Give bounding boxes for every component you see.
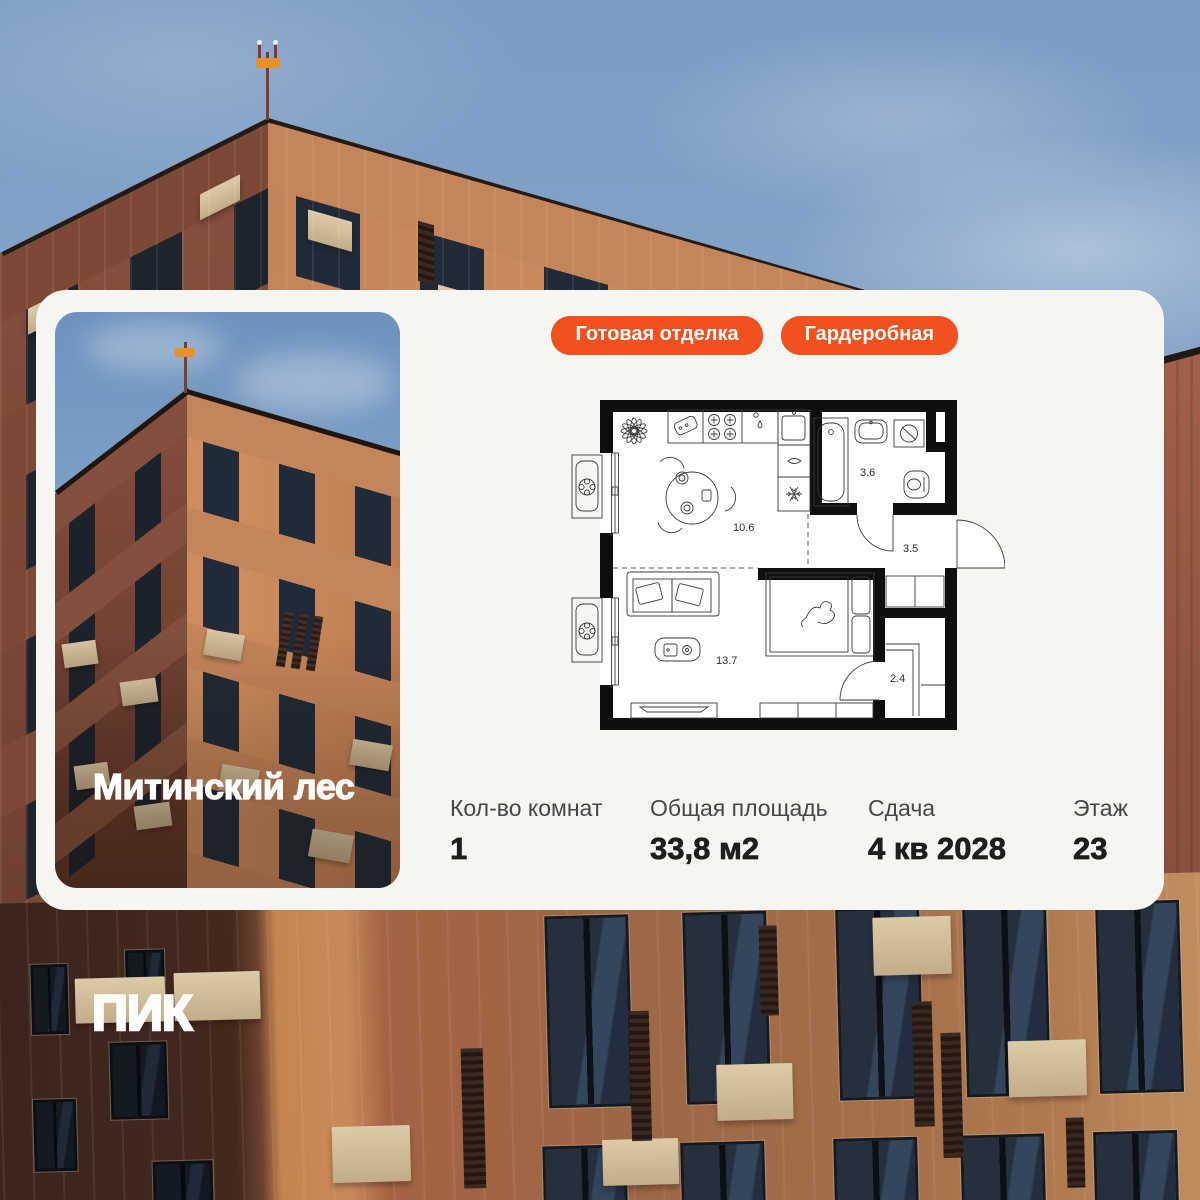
vent-strip <box>629 1011 652 1141</box>
facade-window <box>1095 900 1184 1094</box>
antenna-lamp <box>258 44 261 58</box>
stat-rooms: Кол-во комнат 1 <box>450 795 602 867</box>
floor-plan: 10.6 3.6 <box>565 395 1005 745</box>
vent-strip <box>912 1001 935 1126</box>
stat-floor: Этаж 23 <box>1073 795 1128 867</box>
room-label-wardrobe: 2.4 <box>890 673 905 685</box>
facade-window <box>33 1099 78 1172</box>
ac-box <box>716 1063 793 1121</box>
ac-box <box>1008 1039 1087 1097</box>
stat-label: Кол-во комнат <box>450 795 602 822</box>
pik-logo: ПИК <box>92 984 191 1042</box>
room-label-bathroom: 3.6 <box>860 467 875 479</box>
facade-window <box>152 1160 214 1200</box>
badge-wardrobe: Гардеробная <box>781 316 958 355</box>
stat-value: 33,8 м2 <box>650 831 828 867</box>
antenna-base <box>256 58 280 68</box>
vent-strip <box>759 925 779 1015</box>
facade-window <box>680 1141 768 1200</box>
facade-window <box>30 964 69 1035</box>
badge-row: Готовая отделка Гардеробная <box>551 316 958 355</box>
stat-value: 1 <box>450 831 602 867</box>
stat-label: Сдача <box>868 795 1006 822</box>
room-label-kitchen: 10.6 <box>733 522 754 534</box>
facade-window <box>1093 1130 1181 1200</box>
facade-window <box>833 1137 921 1200</box>
room-label-hallway: 3.5 <box>903 543 918 555</box>
entry-door-icon <box>957 520 1005 568</box>
project-name: Митинский лес <box>93 766 354 808</box>
ac-box <box>872 916 951 976</box>
ac-box <box>602 1138 679 1186</box>
antenna-lamp <box>274 44 277 58</box>
ac-box <box>332 1125 411 1183</box>
vent-strip <box>940 1033 963 1158</box>
stat-label: Общая площадь <box>650 795 828 822</box>
facade-window <box>109 1041 168 1119</box>
stat-value: 4 кв 2028 <box>868 831 1006 867</box>
room-label-room: 13.7 <box>716 655 737 667</box>
facade-window <box>544 914 633 1108</box>
stat-area: Общая площадь 33,8 м2 <box>650 795 828 867</box>
vent-strip <box>1066 1117 1086 1187</box>
stat-value: 23 <box>1073 831 1128 867</box>
listing-card[interactable]: Митинский лес Готовая отделка Гардеробна… <box>36 290 1164 910</box>
stat-label: Этаж <box>1073 795 1128 822</box>
project-photo: Митинский лес <box>55 312 400 888</box>
balcony-ac-icon <box>572 455 602 662</box>
vent-strip <box>461 1048 487 1189</box>
badge-finishing: Готовая отделка <box>551 316 762 355</box>
facade-window <box>960 1133 1048 1200</box>
stat-completion: Сдача 4 кв 2028 <box>868 795 1006 867</box>
